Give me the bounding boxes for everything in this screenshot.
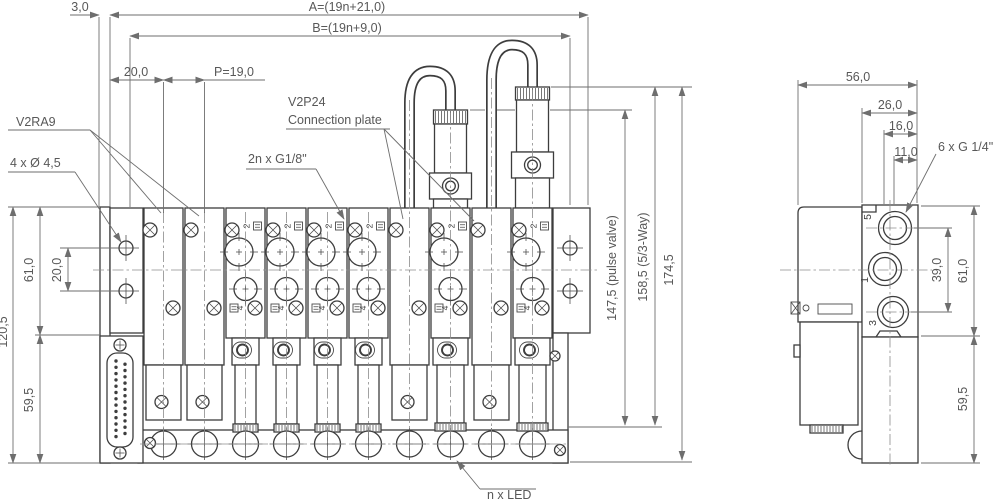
station-1-blank	[143, 208, 183, 460]
svg-text:4: 4	[317, 305, 327, 310]
left-end-plate	[110, 208, 143, 333]
station-3-valve: 24	[220, 208, 265, 460]
svg-text:4: 4	[235, 305, 245, 310]
dim-left-59-5: 59,5	[22, 388, 36, 412]
dim-16: 16,0	[889, 119, 913, 133]
svg-text:4: 4	[440, 305, 450, 310]
dim-26: 26,0	[878, 98, 902, 112]
dim-pitch: P=19,0	[214, 65, 254, 79]
svg-text:4: 4	[522, 305, 532, 310]
svg-text:4: 4	[276, 305, 286, 310]
station-8-tower: 24	[425, 208, 470, 460]
svg-text:2: 2	[365, 223, 375, 228]
station-6-valve: 24	[343, 208, 388, 460]
svg-text:2: 2	[529, 223, 539, 228]
station-4-valve: 24	[261, 208, 306, 460]
port-number-1: 1	[859, 277, 871, 283]
dim-hole-20: 20,0	[50, 258, 64, 282]
callout-mounting-holes: 4 x Ø 4,5	[10, 156, 61, 170]
dim-39: 39,0	[930, 258, 944, 282]
dsub-connector	[107, 353, 133, 447]
dim-120-5: 120,5	[0, 316, 10, 347]
callout-led: n x LED	[487, 488, 531, 502]
side-cable-bulge	[848, 431, 862, 459]
svg-text:2: 2	[283, 223, 293, 228]
upright-valves	[410, 45, 554, 208]
side-solenoid	[800, 322, 858, 425]
callout-v2p24-line1: V2P24	[288, 95, 326, 109]
dim-side-59-5: 59,5	[956, 387, 970, 411]
station-2-blank	[184, 208, 224, 460]
callout-working-ports: 2n x G1/8"	[248, 152, 307, 166]
side-bump	[794, 345, 800, 357]
dim-overall-a: A=(19n+21,0)	[309, 0, 385, 14]
station-9-blank	[471, 208, 511, 460]
svg-text:2: 2	[447, 223, 457, 228]
dim-20-0: 20,0	[124, 65, 148, 79]
port-number-5: 5	[862, 214, 874, 220]
dim-56: 56,0	[846, 70, 870, 84]
valve-terminal-technical-drawing: 242424242424	[0, 0, 1000, 502]
dim-158-5: 158,5 (5/3-Way)	[636, 212, 650, 301]
dim-overall-b: B=(19n+9,0)	[312, 21, 382, 35]
callout-g14: 6 x G 1/4"	[938, 140, 993, 154]
station-5-valve: 24	[302, 208, 347, 460]
right-end-plate	[553, 208, 590, 333]
dim-3-0: 3,0	[71, 0, 88, 14]
station-10-tower: 24	[507, 208, 552, 460]
callout-v2p24-line2: Connection plate	[288, 113, 382, 127]
dim-147-5: 147,5 (pulse valve)	[605, 215, 619, 321]
port-number-3: 3	[867, 320, 879, 326]
dim-11: 11,0	[894, 145, 917, 159]
svg-text:4: 4	[358, 305, 368, 310]
station-7-blank	[389, 208, 429, 460]
svg-text:2: 2	[324, 223, 334, 228]
dim-174-5: 174,5	[662, 254, 676, 285]
callout-v2ra9: V2RA9	[16, 115, 56, 129]
side-view	[791, 205, 918, 463]
dim-left-61: 61,0	[22, 258, 36, 282]
svg-text:2: 2	[242, 223, 252, 228]
dim-side-61: 61,0	[956, 259, 970, 283]
